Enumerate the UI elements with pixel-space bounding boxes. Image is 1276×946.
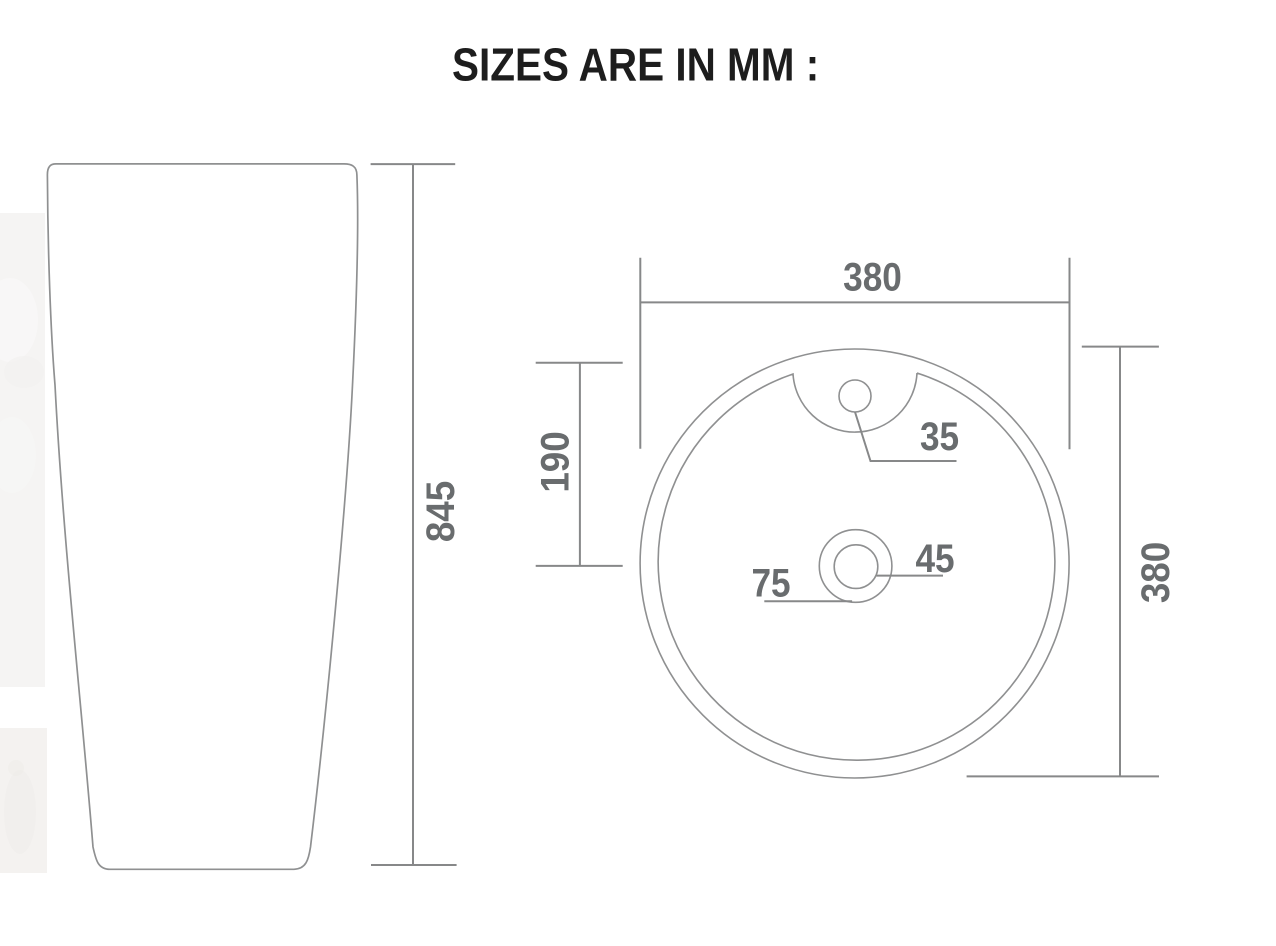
svg-text:45: 45 xyxy=(915,536,954,581)
svg-text:190: 190 xyxy=(533,431,578,492)
svg-text:SIZES ARE IN MM :: SIZES ARE IN MM : xyxy=(452,40,819,91)
svg-text:380: 380 xyxy=(843,254,902,299)
svg-text:380: 380 xyxy=(1134,542,1179,603)
svg-text:845: 845 xyxy=(419,481,464,542)
svg-text:35: 35 xyxy=(920,414,959,459)
svg-text:75: 75 xyxy=(751,560,790,605)
